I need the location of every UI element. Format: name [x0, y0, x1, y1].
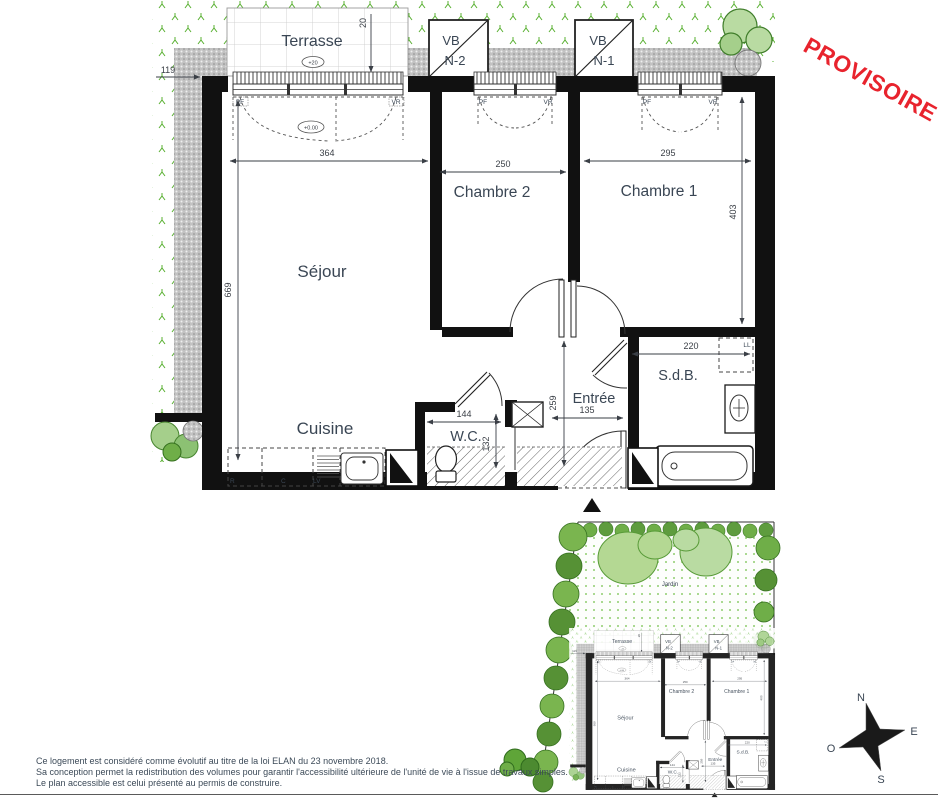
vb-label: VB — [442, 33, 459, 48]
tag-vr: VR — [543, 99, 552, 106]
chambre2-label: Chambre 2 — [454, 184, 531, 201]
dim-403: 403 — [728, 204, 738, 219]
dim-132: 132 — [481, 436, 491, 451]
footer-notes: Ce logement est considéré comme évolutif… — [36, 756, 568, 788]
tag-fridge: R — [230, 478, 235, 485]
sdb-label: S.d.B. — [658, 368, 698, 384]
wc-label: W.C. — [450, 429, 481, 445]
gravel-band-top-1 — [174, 48, 228, 76]
dim-259: 259 — [548, 395, 558, 410]
tag-dishwasher: LV — [313, 478, 321, 485]
washer-slot: LL — [719, 338, 753, 372]
wall-stub-left — [155, 413, 202, 422]
hall-doors — [510, 279, 625, 337]
vb-n1-label: N-1 — [594, 53, 615, 68]
entrance-arrow-icon — [583, 498, 601, 512]
compass-rose: N E S O — [827, 692, 918, 786]
kitchen-sink — [341, 453, 383, 484]
footer-line: Ce logement est considéré comme évolutif… — [36, 756, 568, 767]
dim-144: 144 — [456, 409, 471, 419]
terrasse-label: Terrasse — [281, 33, 342, 50]
compass-e: E — [910, 726, 917, 738]
tag-ll: LL — [743, 342, 751, 349]
jardin-label: Jardin — [662, 582, 678, 588]
compass-s: S — [877, 774, 884, 786]
dim-364: 364 — [319, 148, 334, 158]
washbasin — [725, 385, 755, 433]
tag-pf: PF — [643, 99, 651, 106]
tag-vr: VR — [708, 99, 717, 106]
duct-shaft-sdb — [628, 448, 658, 488]
vb-box-n2: VB N-2 — [429, 20, 488, 77]
exterior-walls — [202, 76, 775, 490]
footer-line: Sa conception permet la redistribution d… — [36, 767, 568, 778]
wc-door — [455, 372, 502, 407]
terrasse-level: +20 — [308, 61, 317, 67]
compass-o: O — [827, 743, 836, 755]
compass-n: N — [857, 692, 865, 704]
tag-vr: VR — [391, 99, 400, 106]
dim-250: 250 — [495, 159, 510, 169]
entry-floor-hatch — [517, 447, 622, 486]
footer-line: Le plan accessible est celui présenté au… — [36, 778, 568, 789]
entree-label: Entrée — [573, 391, 616, 407]
tag-cooker: C — [281, 478, 286, 485]
floor-plan-page: Terrasse +20 20 119 VB N-2 VB N-1 — [0, 0, 938, 800]
title-block-divider — [0, 794, 938, 795]
cuisine-label: Cuisine — [297, 419, 354, 438]
mini-apartment-plan — [569, 628, 775, 797]
dim-220: 220 — [683, 341, 698, 351]
dim-669: 669 — [223, 282, 233, 297]
gravel-band-top-2 — [408, 48, 429, 76]
sejour-label: Séjour — [297, 262, 346, 281]
gravel-band-left — [174, 60, 202, 416]
dimensions: 364 250 295 669 403 220 144 135 259 132 — [223, 97, 751, 468]
chambre1-label: Chambre 1 — [621, 183, 698, 200]
floor-plan-svg: Terrasse +20 20 119 VB N-2 VB N-1 — [0, 0, 938, 800]
vb-box-n1: VB N-1 — [575, 20, 633, 77]
window-sejour: PF VR +0.00 — [233, 72, 404, 141]
compass-star-icon — [839, 703, 905, 771]
apartment-plan: Terrasse +20 20 119 VB N-2 VB N-1 — [151, 0, 775, 512]
tag-pf: PF — [236, 99, 244, 106]
sdb-door — [592, 340, 627, 388]
toilet — [436, 446, 457, 482]
vb-n2-label: N-2 — [445, 53, 466, 68]
dim-119: 119 — [161, 65, 175, 75]
duct-shaft-kitchen — [386, 450, 418, 486]
dim-20: 20 — [358, 18, 368, 28]
sejour-level: +0.00 — [304, 126, 318, 132]
window-chambre2: PF VR — [474, 72, 556, 128]
bathtub — [656, 446, 753, 486]
dim-295: 295 — [660, 148, 675, 158]
tag-pf: PF — [479, 99, 487, 106]
vb-label: VB — [589, 33, 606, 48]
window-chambre1: PF VR — [638, 72, 722, 132]
